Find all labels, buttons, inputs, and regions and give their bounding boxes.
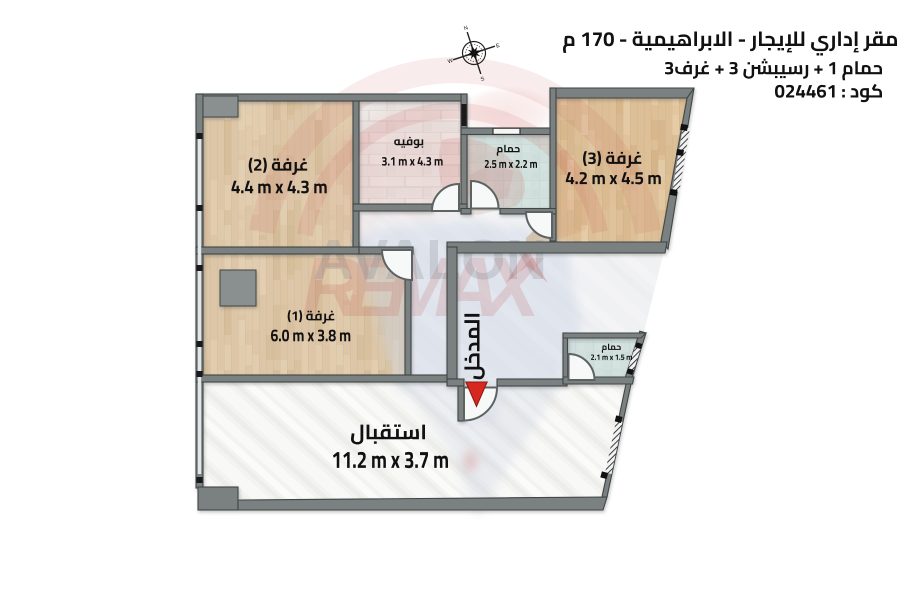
svg-text:AVALON: AVALON bbox=[313, 228, 547, 292]
